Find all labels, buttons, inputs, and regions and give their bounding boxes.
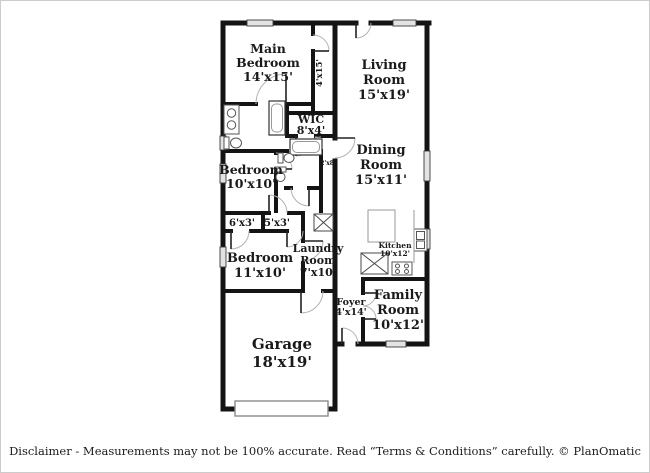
room-name: Dining bbox=[356, 143, 405, 158]
room-label-bedroom3: Bedroom 11'x10' bbox=[227, 251, 294, 281]
room-label-living: Living Room 15'x19' bbox=[358, 58, 410, 103]
room-dims: 14'x15' bbox=[243, 69, 293, 84]
room-dims: 10'x10' bbox=[226, 176, 276, 191]
kitchen-island-icon bbox=[368, 210, 395, 242]
room-dims: 10'x12' bbox=[372, 318, 424, 333]
room-name: Bedroom bbox=[227, 251, 294, 266]
bathtub-icon bbox=[269, 101, 285, 135]
room-name: Room bbox=[363, 73, 405, 88]
room-name: Garage bbox=[252, 335, 312, 353]
room-label-bedroom2: Bedroom 10'x10' bbox=[219, 162, 283, 191]
garage-door-icon bbox=[235, 401, 328, 416]
room-label-foyer: Foyer 4'x14' bbox=[335, 297, 366, 318]
room-dims: 10'x12' bbox=[380, 249, 410, 258]
floor-plan-page: Main Bedroom 14'x15' 4'x15' Living Room … bbox=[0, 0, 650, 473]
window-icon bbox=[424, 151, 430, 181]
room-name: Main bbox=[250, 41, 286, 56]
room-label-hall-top: 4'x15' bbox=[315, 59, 325, 87]
room-name: Living bbox=[361, 58, 406, 73]
room-label-garage: Garage 18'x19' bbox=[252, 335, 312, 371]
door-arc bbox=[301, 291, 323, 313]
door-arc bbox=[231, 231, 249, 249]
door-arc bbox=[291, 188, 309, 206]
room-dims: 11'x10' bbox=[234, 266, 286, 281]
stove-icon bbox=[392, 262, 412, 275]
room-label-wic: WIC 8'x4' bbox=[297, 113, 326, 137]
room-label-main-bedroom: Main Bedroom 14'x15' bbox=[236, 41, 300, 84]
kitchen-sink-icon bbox=[414, 229, 427, 251]
window-icon bbox=[393, 20, 416, 26]
room-name: Room bbox=[360, 158, 402, 173]
floor-plan-drawing: Main Bedroom 14'x15' 4'x15' Living Room … bbox=[1, 1, 650, 449]
room-dims: 8'x4' bbox=[297, 124, 326, 137]
toilet-icon bbox=[224, 137, 242, 149]
utility-closet-icon bbox=[314, 214, 333, 231]
room-label-closet1: 6'x3' bbox=[229, 218, 255, 229]
room-name: Bedroom bbox=[219, 162, 283, 177]
door-arc bbox=[335, 138, 355, 158]
window-icon bbox=[220, 247, 226, 267]
room-name: Bedroom bbox=[236, 55, 300, 70]
room-dims: 15'x19' bbox=[358, 88, 410, 103]
room-label-closet2: 5'x3' bbox=[264, 218, 290, 229]
window-icon bbox=[247, 20, 273, 26]
window-icon bbox=[386, 341, 406, 347]
room-label-kitchen: Kitchen 10'x12' bbox=[378, 241, 412, 258]
room-name: Room bbox=[377, 303, 419, 318]
room-name: Family bbox=[374, 288, 423, 303]
door-arc bbox=[313, 35, 329, 51]
room-dims: 7'x10' bbox=[300, 266, 336, 279]
bathtub-icon bbox=[290, 139, 322, 155]
room-dims: 18'x19' bbox=[252, 353, 312, 371]
room-label-dining: Dining Room 15'x11' bbox=[355, 143, 407, 188]
room-label-hall-mid: 2'x8' bbox=[320, 160, 336, 167]
room-label-family: Family Room 10'x12' bbox=[372, 288, 424, 333]
vanity-double-sink-icon bbox=[224, 105, 239, 134]
disclaimer-text: Disclaimer - Measurements may not be 100… bbox=[1, 444, 649, 458]
room-dims: 15'x11' bbox=[355, 173, 407, 188]
room-dims: 4'x14' bbox=[335, 307, 366, 318]
